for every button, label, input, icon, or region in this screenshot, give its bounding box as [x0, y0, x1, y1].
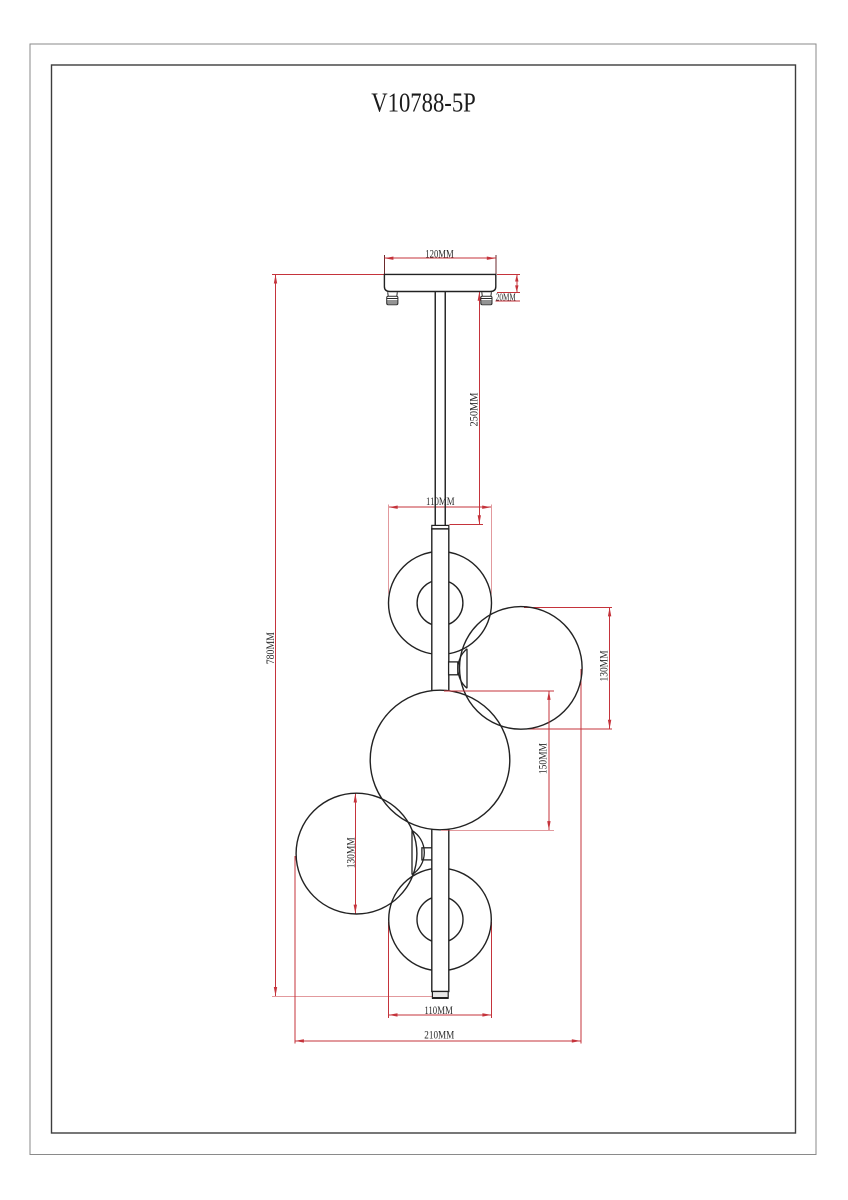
svg-text:210MM: 210MM — [424, 1027, 454, 1041]
svg-text:130MM: 130MM — [596, 650, 610, 681]
svg-text:780MM: 780MM — [263, 632, 277, 664]
svg-text:250MM: 250MM — [467, 392, 481, 426]
svg-text:V10788-5P: V10788-5P — [371, 87, 476, 118]
svg-text:120MM: 120MM — [425, 246, 454, 260]
svg-text:150MM: 150MM — [536, 743, 550, 774]
svg-text:110MM: 110MM — [426, 494, 455, 508]
svg-text:110MM: 110MM — [424, 1003, 453, 1017]
svg-text:130MM: 130MM — [344, 837, 358, 868]
